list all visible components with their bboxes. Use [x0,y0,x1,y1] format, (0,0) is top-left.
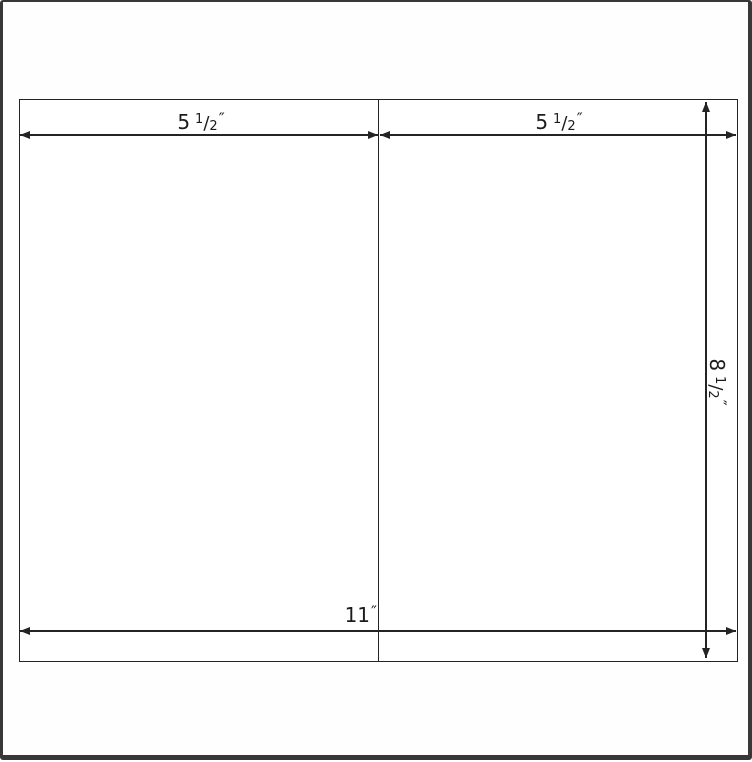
dimension-denominator: 2 [705,390,720,398]
inch-mark: ″ [219,109,225,128]
dimension-whole: 8 [705,358,729,371]
dimension-whole: 5 [535,110,548,134]
dimension-denominator: 2 [567,119,575,134]
label-left-panel-width: 51/2″ [141,107,261,139]
dimension-whole: 5 [177,110,190,134]
dimension-whole: 11 [345,603,370,627]
label-sheet-height: 81/2″ [708,322,732,442]
label-right-panel-width: 51/2″ [499,107,619,139]
dimension-denominator: 2 [209,119,217,134]
inch-mark: ″ [371,602,377,621]
dimension-arrows [3,2,752,762]
label-total-width: 11″ [267,600,377,627]
inch-mark: ″ [711,400,730,406]
screenshot-frame: 51/2″ 51/2″ 11″ 81/2″ [0,0,752,760]
inch-mark: ″ [577,109,583,128]
